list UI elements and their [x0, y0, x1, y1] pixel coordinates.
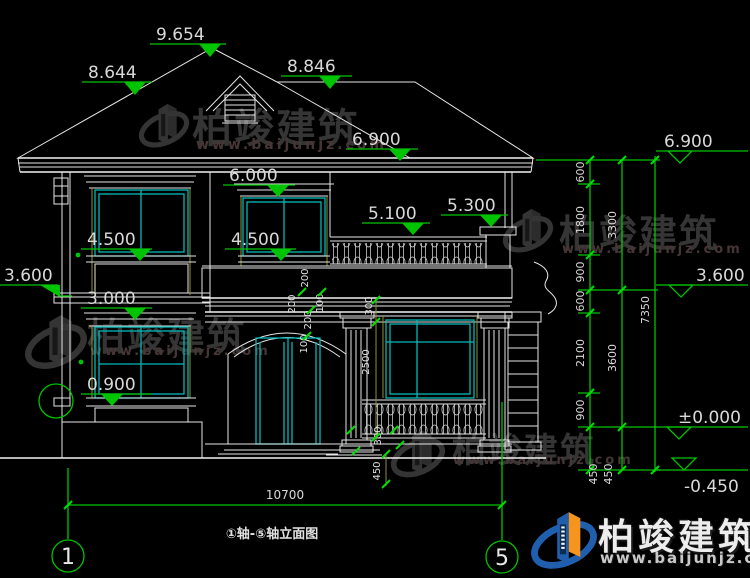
porch-railing	[205, 400, 512, 444]
vdim-450a: 450	[587, 464, 600, 485]
level-f2-window-head: 6.000	[229, 166, 278, 186]
level-marks-right: 6.900 3.600 ±0.000 -0.450	[654, 132, 748, 497]
level-f2-sill-mid: 4.500	[231, 230, 280, 250]
ddim-200a: 200	[287, 294, 298, 313]
vdim-900b: 900	[574, 400, 587, 421]
snap-dot	[76, 253, 81, 258]
level-f2-sill-left: 4.500	[87, 230, 136, 250]
window-1f-left	[84, 313, 196, 422]
detail-callout-circle	[39, 384, 73, 418]
axis-label-5: 5	[495, 546, 509, 571]
ddim-100a: 100	[315, 293, 326, 312]
entrance-door	[228, 333, 346, 444]
vdim-600a: 600	[574, 162, 587, 183]
company-logo-url: www.baijunjz.com	[600, 549, 750, 567]
ddim-300b: 300	[373, 426, 384, 445]
level-roof-left: 8.644	[88, 63, 137, 83]
level-eave: 6.900	[352, 130, 401, 150]
level-f2-floor-left: 3.600	[4, 266, 53, 286]
vdim-600b: 600	[574, 291, 587, 312]
level-right-outdoor: -0.450	[684, 477, 739, 497]
level-marks-left: 9.654 8.644 8.846 6.900 6.000 5.100 5.30…	[0, 25, 508, 406]
porch-roof-band	[202, 262, 556, 314]
balcony-railing	[330, 227, 516, 268]
level-f1-window-head: 3.000	[87, 289, 136, 309]
level-right-eave: 6.900	[664, 132, 713, 152]
vdim-900a: 900	[574, 262, 587, 283]
hdim-10700: 10700	[266, 488, 304, 502]
dormer	[206, 76, 274, 123]
vdim-2100: 2100	[574, 339, 587, 367]
level-f1-sill: 0.900	[87, 375, 136, 395]
snap-dot	[79, 360, 84, 365]
axis-bubbles: 1 5	[52, 540, 518, 573]
ddim-300a: 300	[364, 296, 375, 315]
level-ridge: 9.654	[156, 25, 205, 45]
elevation-drawing: 9.654 8.644 8.846 6.900 6.000 5.100 5.30…	[0, 0, 750, 578]
axis-label-1: 1	[61, 545, 75, 570]
level-right-ground: ±0.000	[678, 408, 741, 428]
level-roof-rear: 8.846	[287, 57, 336, 77]
vdim-3600: 3600	[606, 344, 619, 372]
window-1f-right	[383, 316, 477, 398]
cad-elevation-canvas: 柏竣建筑 www.baijunjz.com 柏竣建筑 www.baijunjz.…	[0, 0, 750, 578]
ddim-2500: 2500	[361, 349, 372, 374]
ddim-450: 450	[372, 461, 383, 480]
corner-quoins	[505, 312, 541, 450]
vdim-1800: 1800	[574, 206, 587, 234]
level-balcony-pier: 5.300	[447, 196, 496, 216]
vdim-7350: 7350	[639, 296, 652, 324]
vdim-3300: 3300	[606, 211, 619, 239]
vdim-450b: 450	[602, 464, 615, 485]
dimension-chains-right: 600 1800 900 600 2100 900 450 450 3300 3…	[536, 156, 660, 485]
level-right-floor2: 3.600	[696, 266, 745, 286]
ddim-200c: 200	[300, 268, 311, 287]
level-balcony-rail: 5.100	[368, 204, 417, 224]
drawing-title: ①轴-⑤轴立面图	[226, 526, 318, 542]
